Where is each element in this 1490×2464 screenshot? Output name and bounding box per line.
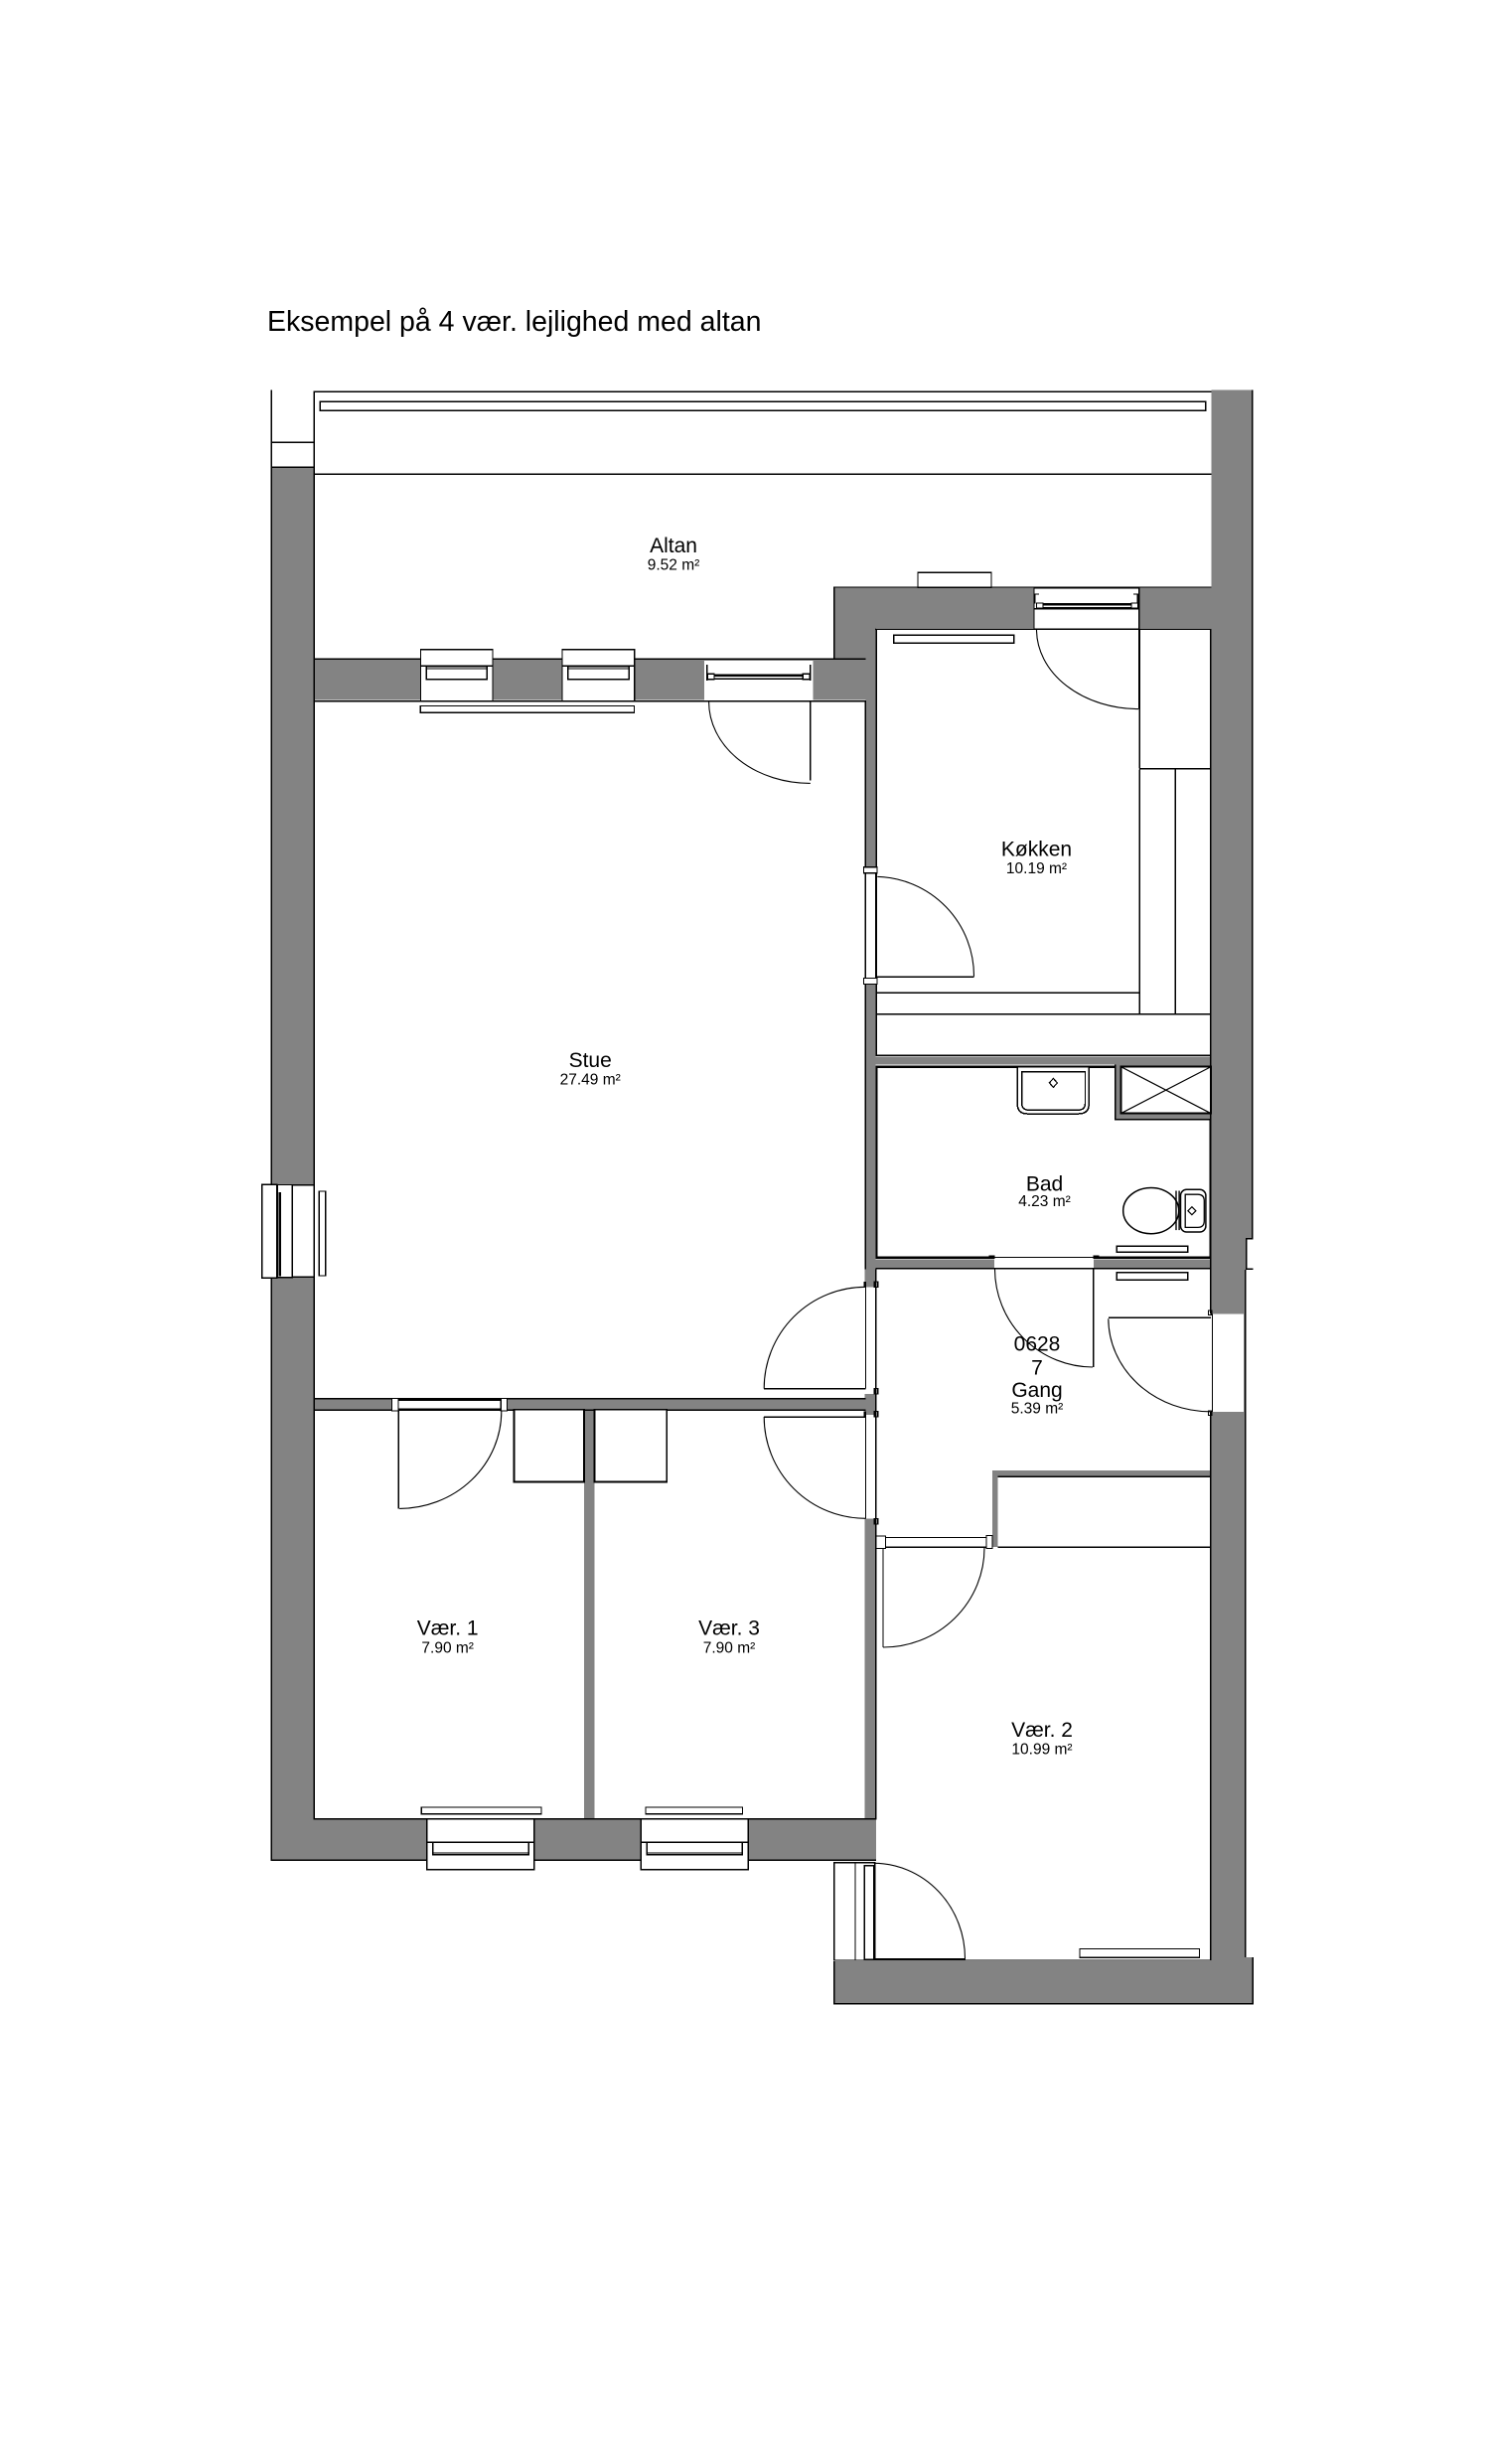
svg-text:7.90 m²: 7.90 m² [703,1640,756,1657]
svg-text:10.19 m²: 10.19 m² [1006,860,1067,877]
svg-text:5.39 m²: 5.39 m² [1011,1401,1064,1418]
svg-text:Vær. 3: Vær. 3 [698,1617,760,1640]
svg-text:7.90 m²: 7.90 m² [421,1640,474,1657]
svg-text:Stue: Stue [569,1049,612,1072]
svg-text:4.23 m²: 4.23 m² [1018,1193,1071,1210]
svg-text:Altan: Altan [650,535,697,557]
svg-text:10.99 m²: 10.99 m² [1011,1742,1072,1759]
svg-text:27.49 m²: 27.49 m² [560,1072,621,1089]
svg-text:Køkken: Køkken [1001,839,1072,861]
svg-text:7: 7 [1031,1357,1043,1380]
svg-text:9.52 m²: 9.52 m² [648,557,700,574]
svg-text:0628: 0628 [1014,1333,1061,1356]
svg-text:Gang: Gang [1011,1379,1062,1402]
svg-text:Vær. 2: Vær. 2 [1011,1719,1073,1742]
svg-text:Eksempel på 4 vær. lejlighed m: Eksempel på 4 vær. lejlighed med altan [267,306,761,338]
svg-text:Vær. 1: Vær. 1 [417,1617,479,1640]
